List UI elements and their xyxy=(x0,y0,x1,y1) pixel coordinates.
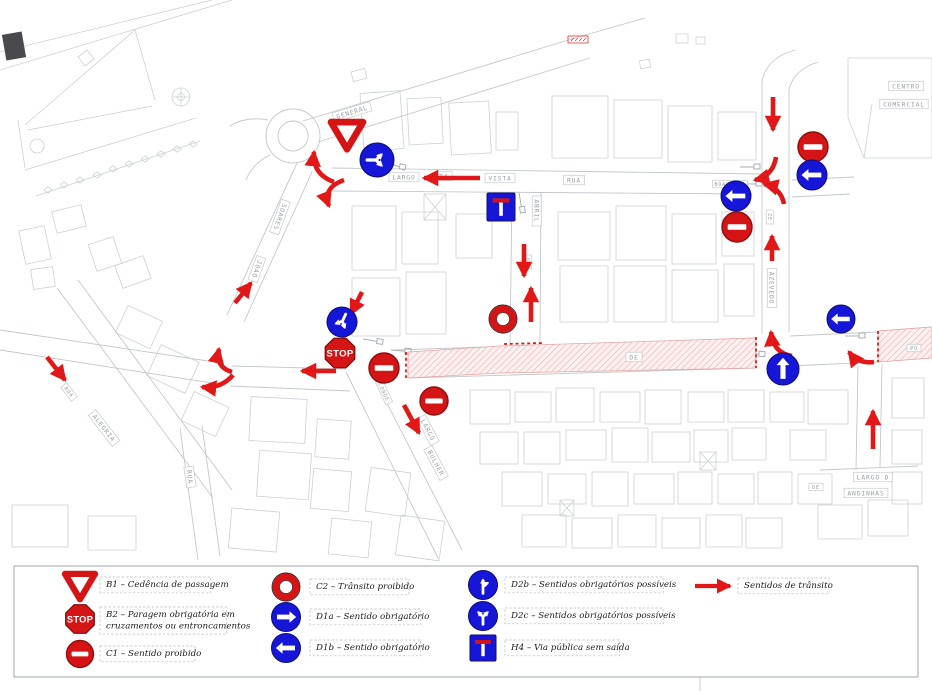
svg-text:DE: DE xyxy=(812,485,820,491)
svg-text:C2 – Trânsito proibido: C2 – Trânsito proibido xyxy=(316,581,414,592)
traffic-sign-left-boavista-east xyxy=(721,181,751,211)
svg-text:ZE: ZE xyxy=(766,213,772,221)
street-label: SOARES xyxy=(270,199,291,235)
traffic-sign-no-entry-azevedo-north xyxy=(798,132,828,162)
traffic-direction-arrows xyxy=(47,97,874,449)
traffic-sign-left-azevedo-north xyxy=(797,160,827,190)
traffic-sign-legend-D1a xyxy=(272,603,301,632)
traffic-flow-arrow xyxy=(764,184,784,204)
svg-text:B2 – Paragem obrigatória em: B2 – Paragem obrigatória em xyxy=(105,609,235,620)
traffic-sign-no-entry-azevedo-south xyxy=(722,212,752,242)
traffic-sign-legend-D1b xyxy=(272,634,301,663)
traffic-flow-arrow xyxy=(849,352,874,362)
svg-text:LARGO: LARGO xyxy=(419,418,437,442)
svg-text:PO: PO xyxy=(910,346,918,352)
street-label: ZE xyxy=(766,210,774,224)
legend-label: H4 – Via pública sem saída xyxy=(505,640,630,656)
svg-text:ABRIL: ABRIL xyxy=(533,199,541,222)
svg-text:D2c – Sentidos obrigatórios po: D2c – Sentidos obrigatórios possíveis xyxy=(510,610,676,621)
svg-text:D1b – Sentido obrigatório: D1b – Sentido obrigatório xyxy=(315,642,430,653)
street-label: PO xyxy=(907,344,921,352)
svg-text:DE: DE xyxy=(629,353,638,361)
traffic-sign-no-entry-bulher xyxy=(420,387,448,415)
traffic-flow-arrow xyxy=(327,180,344,206)
svg-text:LARGO: LARGO xyxy=(392,173,415,181)
traffic-flow-arrow xyxy=(314,152,334,182)
traffic-sign-legend-H4 xyxy=(470,635,496,661)
legend-label: D1b – Sentido obrigatório xyxy=(310,640,430,656)
street-label: ANDINHAS xyxy=(844,488,888,498)
traffic-sign-yield-general xyxy=(331,122,363,149)
legend-label: B1 – Cedência de passagem xyxy=(100,577,229,593)
traffic-flow-arrow xyxy=(218,349,232,372)
traffic-flow-arrow xyxy=(771,332,792,356)
svg-text:STOP: STOP xyxy=(326,349,353,360)
svg-text:STOP: STOP xyxy=(67,614,93,624)
svg-text:SOARES: SOARES xyxy=(271,202,288,231)
traffic-sign-stop-junction: STOP xyxy=(325,338,355,368)
street-label: CENTRO xyxy=(889,81,924,91)
traffic-flow-arrow xyxy=(47,357,65,380)
street-label: LARGO D xyxy=(853,472,892,482)
svg-text:CENTRO: CENTRO xyxy=(892,82,920,90)
traffic-sign-legend-C2 xyxy=(272,573,300,601)
traffic-sign-legend-D2c xyxy=(469,602,498,631)
traffic-sign-no-entry-stop xyxy=(369,353,399,383)
legend-label: D2c – Sentidos obrigatórios possíveis xyxy=(505,608,676,624)
svg-text:RUA: RUA xyxy=(567,176,581,184)
svg-text:H4 – Via pública sem saída: H4 – Via pública sem saída xyxy=(510,642,630,653)
svg-text:C1 – Sentido proibido: C1 – Sentido proibido xyxy=(106,649,201,659)
street-label: COMERCIAL xyxy=(880,99,928,109)
traffic-sign-legend-C1 xyxy=(67,641,94,668)
traffic-sign-up-main-junction xyxy=(767,353,799,385)
traffic-sign-legend-B1 xyxy=(65,574,95,599)
svg-text:cruzamentos ou entroncamentos: cruzamentos ou entroncamentos xyxy=(106,622,251,632)
dark-building-block xyxy=(2,31,26,60)
street-label: RUA xyxy=(184,466,196,488)
street-label: ABRIL xyxy=(532,196,542,226)
street-label: LARGO xyxy=(389,172,419,182)
svg-text:ALEGRIA: ALEGRIA xyxy=(91,413,117,444)
street-label: LARGO xyxy=(417,415,439,446)
street-label: ALEGRIA xyxy=(88,410,120,447)
street-label: RUA xyxy=(61,383,78,401)
traffic-circulation-plan: GENERALLARGODAVISTARUABOAVISTAABRILDEZEA… xyxy=(0,0,932,691)
svg-text:VISTA: VISTA xyxy=(488,174,511,182)
street-label: DE xyxy=(626,352,642,362)
svg-text:AZEVEDO: AZEVEDO xyxy=(768,272,776,305)
legend-label: Sentidos de trânsito xyxy=(738,578,833,594)
svg-text:B1 – Cedência de passagem: B1 – Cedência de passagem xyxy=(105,579,229,590)
street-map-canvas: GENERALLARGODAVISTARUABOAVISTAABRILDEZEA… xyxy=(0,0,932,691)
legend-label: C1 – Sentido proibido xyxy=(100,646,201,662)
street-label: RUA xyxy=(564,175,585,185)
street-label: AZEVEDO xyxy=(767,268,777,307)
traffic-sign-dead-end-abril xyxy=(487,193,515,221)
svg-text:Sentidos de trânsito: Sentidos de trânsito xyxy=(744,580,833,591)
traffic-sign-left-main-east xyxy=(827,305,855,333)
street-label: JOAO xyxy=(248,255,266,282)
street-label: VISTA xyxy=(485,173,515,183)
svg-text:LARGO D: LARGO D xyxy=(857,473,890,481)
traffic-sign-fork-largo xyxy=(360,143,394,177)
legend: B1 – Cedência de passagemSTOPB2 – Parage… xyxy=(65,571,833,668)
traffic-sign-legend-D2b xyxy=(469,571,498,600)
legend-label: C2 – Trânsito proibido xyxy=(310,579,414,595)
svg-text:COMERCIAL: COMERCIAL xyxy=(883,100,925,108)
svg-text:D2b – Sentidos obrigatórios po: D2b – Sentidos obrigatórios possíveis xyxy=(510,579,677,590)
street-label: BULHER xyxy=(424,445,449,480)
legend-label: D1a – Sentido obrigatório xyxy=(310,609,429,625)
traffic-flow-arrow xyxy=(351,292,362,314)
street-label: DE xyxy=(809,483,823,491)
traffic-sign-legend-B2: STOP xyxy=(66,605,95,634)
traffic-flow-arrow xyxy=(202,375,233,387)
traffic-sign-forbidden-abril xyxy=(489,305,517,333)
legend-label: B2 – Paragem obrigatória emcruzamentos o… xyxy=(100,607,251,634)
legend-label: D2b – Sentidos obrigatórios possíveis xyxy=(505,577,677,593)
svg-text:ANDINHAS: ANDINHAS xyxy=(847,489,884,497)
svg-text:D1a – Sentido obrigatório: D1a – Sentido obrigatório xyxy=(315,611,429,622)
